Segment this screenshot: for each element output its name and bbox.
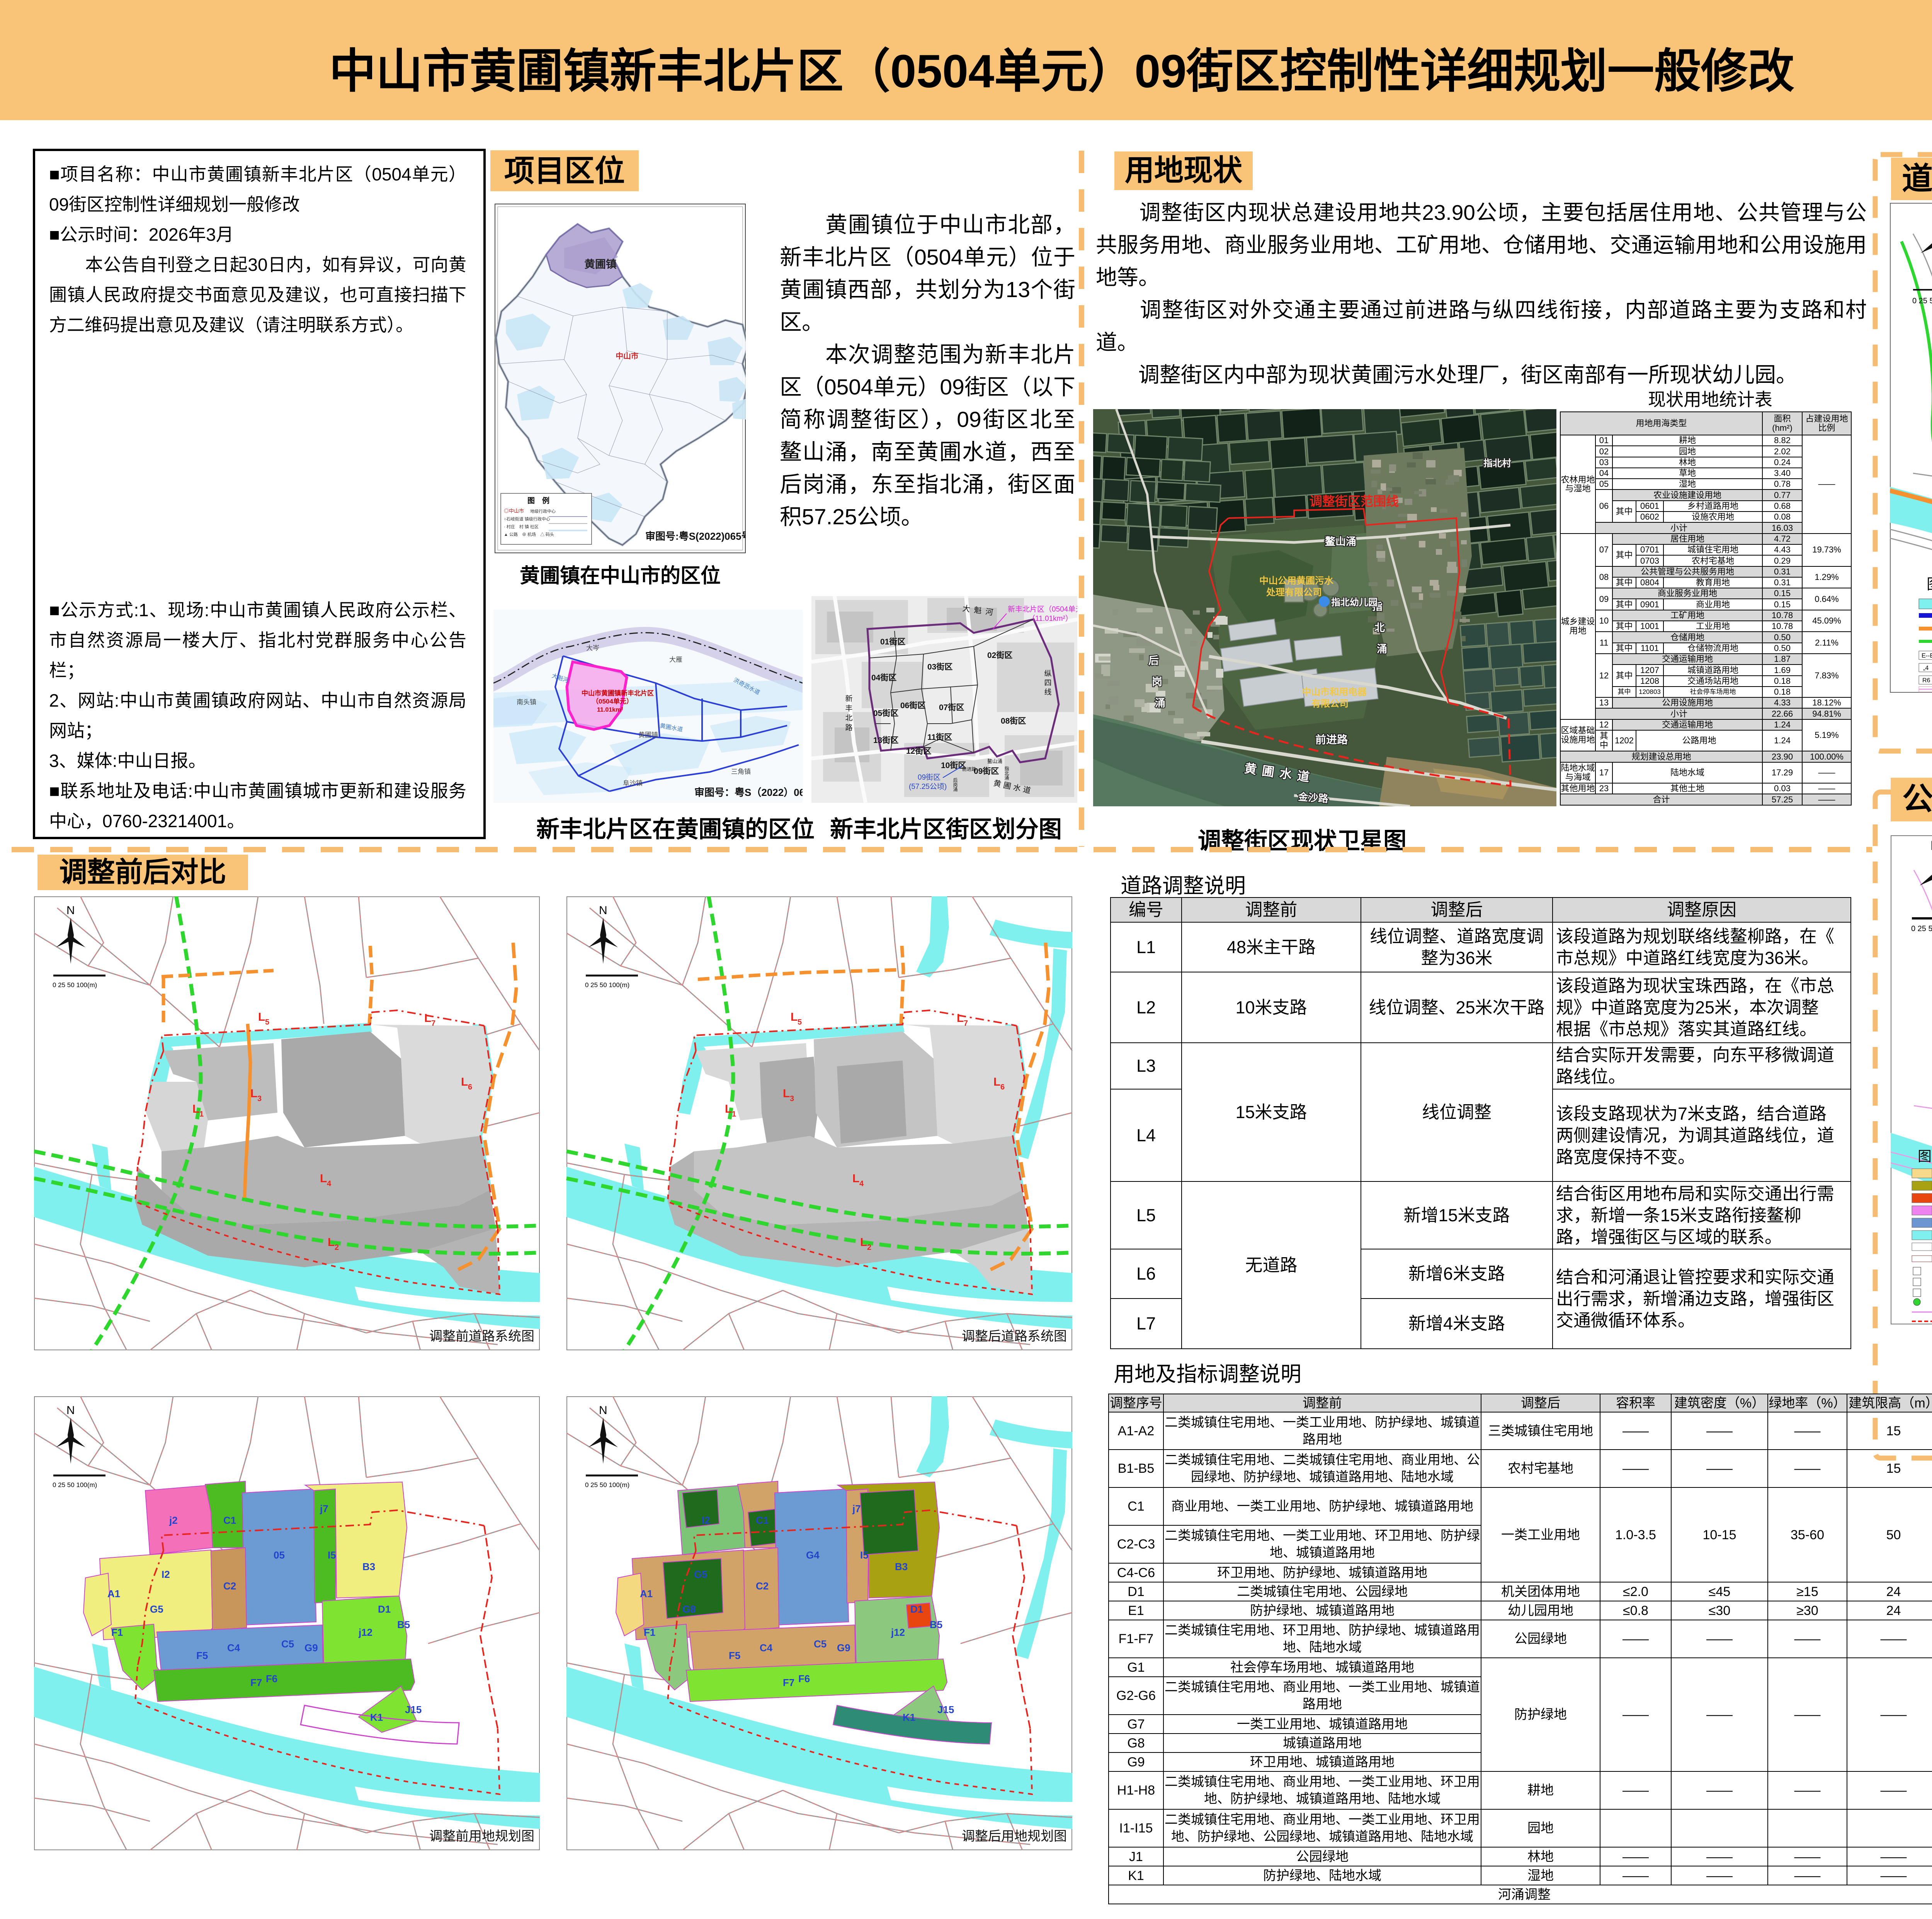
svg-text:(57.25公顷): (57.25公顷) [909,783,947,791]
svg-text:L: L [957,1012,964,1025]
svg-text:11.01km²: 11.01km² [597,707,623,713]
svg-text:0 25 50 100(m): 0 25 50 100(m) [585,981,629,989]
svg-text:0 25 50 100(m): 0 25 50 100(m) [585,1481,629,1489]
svg-text:G4: G4 [806,1549,820,1561]
svg-text:F7: F7 [250,1677,262,1688]
svg-text:0 25 50 100(m): 0 25 50 100(m) [53,981,97,989]
svg-text:03街区: 03街区 [927,662,952,671]
svg-text:纵四线: 纵四线 [1043,670,1052,697]
svg-text:新丰北路: 新丰北路 [844,695,853,733]
svg-text:L: L [328,1236,335,1249]
svg-text:指北村: 指北村 [1483,458,1511,469]
svg-text:有限公司: 有限公司 [1311,699,1349,709]
svg-text:F5: F5 [729,1650,740,1661]
svg-text:C1: C1 [223,1514,236,1526]
svg-text:6: 6 [468,1083,472,1091]
svg-text:04街区: 04街区 [871,673,896,682]
svg-text:J15: J15 [405,1704,422,1715]
svg-text:调整前道路系统图: 调整前道路系统图 [429,1329,534,1344]
svg-text:G9: G9 [837,1642,850,1654]
svg-text:N: N [66,1404,75,1417]
svg-text:L: L [320,1172,327,1185]
svg-text:6: 6 [1000,1083,1005,1091]
svg-text:D1: D1 [910,1603,923,1615]
svg-text:◎中山市: ◎中山市 [504,508,524,514]
svg-text:N: N [599,1404,607,1417]
svg-text:0 25 50 100(m): 0 25 50 100(m) [1911,925,1932,933]
svg-text:06街区: 06街区 [900,701,925,710]
svg-text:K1: K1 [903,1712,915,1723]
svg-text:B5: B5 [397,1619,410,1630]
svg-text:涌: 涌 [1155,697,1165,709]
svg-text:阜沙镇: 阜沙镇 [623,780,643,787]
svg-text:08街区: 08街区 [1001,716,1026,726]
svg-text:N: N [599,904,607,917]
svg-text:12街区: 12街区 [906,746,931,756]
svg-text:大岑: 大岑 [586,644,599,652]
svg-text:02街区: 02街区 [987,651,1012,660]
svg-text:0 25 50 100(m): 0 25 50 100(m) [53,1481,97,1489]
svg-text:中山市: 中山市 [616,352,638,360]
svg-text:7: 7 [431,1019,435,1028]
svg-text:2: 2 [867,1243,871,1252]
svg-text:L: L [783,1087,790,1100]
svg-text:C2: C2 [223,1580,236,1592]
svg-text:5: 5 [798,1018,802,1027]
svg-text:„4: „4 [1923,665,1929,671]
svg-text:L: L [258,1011,265,1023]
svg-text:涌: 涌 [1377,643,1387,655]
svg-text:G5: G5 [694,1569,707,1580]
svg-text:金沙路: 金沙路 [1298,791,1329,805]
svg-text:L: L [250,1087,257,1100]
svg-text:L: L [860,1236,867,1249]
svg-text:L: L [993,1076,1000,1088]
svg-text:黄圃镇: 黄圃镇 [638,731,658,739]
svg-text:C4: C4 [227,1642,240,1654]
svg-text:南头镇: 南头镇 [517,699,536,706]
svg-text:1: 1 [199,1110,204,1118]
svg-text:C4: C4 [760,1642,773,1654]
svg-text:C2: C2 [756,1580,769,1592]
svg-text:05: 05 [274,1549,285,1561]
svg-text:前进路: 前进路 [962,766,976,772]
svg-text:中山市黄圃镇新丰北片区: 中山市黄圃镇新丰北片区 [582,689,654,697]
svg-text:j7: j7 [320,1503,328,1514]
svg-text:F1: F1 [644,1627,655,1638]
svg-text:j12: j12 [891,1627,905,1638]
svg-text:I5: I5 [860,1549,869,1561]
svg-text:中山公用黄圃污水: 中山公用黄圃污水 [1259,576,1334,586]
svg-text:G5: G5 [150,1603,163,1615]
svg-text:5: 5 [265,1018,269,1027]
svg-text:G8: G8 [682,1603,696,1615]
svg-text:调整后道路系统图: 调整后道路系统图 [962,1329,1067,1344]
svg-text:调整街区范围线: 调整街区范围线 [1310,494,1399,508]
svg-text:B3: B3 [895,1561,908,1572]
svg-text:j12: j12 [358,1627,372,1638]
svg-text:05街区: 05街区 [873,709,898,718]
svg-text:三角镇: 三角镇 [731,768,751,775]
svg-text:图 例: 图 例 [1918,1148,1932,1164]
svg-text:4: 4 [327,1180,332,1188]
svg-text:处理有限公司: 处理有限公司 [1266,587,1322,598]
svg-text:C1: C1 [756,1514,769,1526]
svg-text:L: L [791,1011,798,1023]
svg-text:审图号:粤S(2022)065号: 审图号:粤S(2022)065号 [645,530,746,542]
svg-text:R6: R6 [1922,677,1930,684]
svg-text:L: L [424,1012,431,1025]
svg-text:j7: j7 [852,1503,861,1514]
svg-text:E--E: E--E [1922,653,1932,659]
svg-text:C5: C5 [814,1638,827,1650]
svg-text:11街区: 11街区 [927,733,952,742]
svg-text:C5: C5 [281,1638,294,1650]
svg-text:前进路: 前进路 [1315,733,1348,746]
svg-text:07街区: 07街区 [939,703,964,712]
svg-text:I2: I2 [162,1569,170,1580]
svg-text:0 25 50 100(m): 0 25 50 100(m) [1912,297,1932,305]
svg-text:调整前用地规划图: 调整前用地规划图 [429,1829,534,1844]
svg-text:F5: F5 [196,1650,208,1661]
svg-text:A1: A1 [640,1588,653,1599]
svg-text:K1: K1 [370,1712,383,1723]
svg-text:F1: F1 [111,1627,123,1638]
svg-text:（11.01km²）: （11.01km²） [1028,614,1073,623]
svg-text:鳌山涌: 鳌山涌 [1325,536,1356,547]
svg-text:j2: j2 [169,1514,178,1526]
svg-text:F7: F7 [783,1677,794,1688]
svg-text:1: 1 [732,1110,736,1118]
svg-text:B3: B3 [362,1561,375,1572]
svg-text:4: 4 [859,1180,864,1188]
svg-text:L: L [725,1103,732,1115]
svg-text:G9: G9 [304,1642,318,1654]
svg-text:7: 7 [964,1019,968,1028]
svg-text:01街区: 01街区 [880,637,905,646]
svg-text:J15: J15 [937,1704,954,1715]
svg-text:▲ 公路 ⊕ 机场 △ 码头: ▲ 公路 ⊕ 机场 △ 码头 [504,532,554,537]
svg-text:N: N [1930,838,1932,853]
svg-text:鳌山涌: 鳌山涌 [987,758,1002,764]
svg-text:黄圃镇: 黄圃镇 [584,258,616,270]
svg-text:3: 3 [257,1095,262,1103]
svg-text:F6: F6 [798,1673,810,1684]
svg-text:北: 北 [1374,622,1385,634]
svg-text:L: L [461,1076,468,1088]
svg-text:3: 3 [790,1095,794,1103]
svg-text:后: 后 [1148,655,1159,666]
svg-text:调整后用地规划图: 调整后用地规划图 [962,1829,1067,1844]
svg-text:地级行政中心: 地级行政中心 [530,508,556,514]
svg-text:指北涌: 指北涌 [1004,766,1009,780]
svg-text:（0504单元）: （0504单元） [592,697,633,705]
svg-text:审图号：粤S（2022）065号: 审图号：粤S（2022）065号 [694,787,803,798]
svg-text:后岗涌: 后岗涌 [952,778,958,792]
svg-text:岗: 岗 [1152,676,1162,688]
svg-text:13街区: 13街区 [873,736,898,745]
svg-text:2: 2 [335,1243,339,1252]
svg-text:D1: D1 [378,1603,391,1615]
svg-text:○石岐街道 镇级行政中心: ○石岐街道 镇级行政中心 [504,516,550,522]
svg-text:图 例: 图 例 [527,496,549,505]
svg-text:09街区: 09街区 [974,767,999,776]
svg-text:N: N [66,904,75,917]
svg-text:B5: B5 [930,1619,942,1630]
svg-text:F6: F6 [266,1673,277,1684]
svg-text:09街区: 09街区 [918,773,940,782]
svg-text:· 村庄 村 镇 社区: · 村庄 村 镇 社区 [504,524,539,529]
svg-text:指北幼儿园: 指北幼儿园 [1331,597,1378,608]
svg-text:L: L [192,1103,199,1115]
svg-text:I5: I5 [328,1549,336,1561]
svg-text:大雁: 大雁 [669,656,682,663]
svg-text:中山市和用电器: 中山市和用电器 [1302,687,1367,697]
svg-text:I2: I2 [702,1514,710,1526]
svg-text:A1: A1 [107,1588,120,1599]
svg-text:L: L [852,1172,859,1185]
svg-text:新丰北片区（0504单元）: 新丰北片区（0504单元） [1008,605,1077,614]
svg-text:图 例: 图 例 [1927,576,1932,593]
